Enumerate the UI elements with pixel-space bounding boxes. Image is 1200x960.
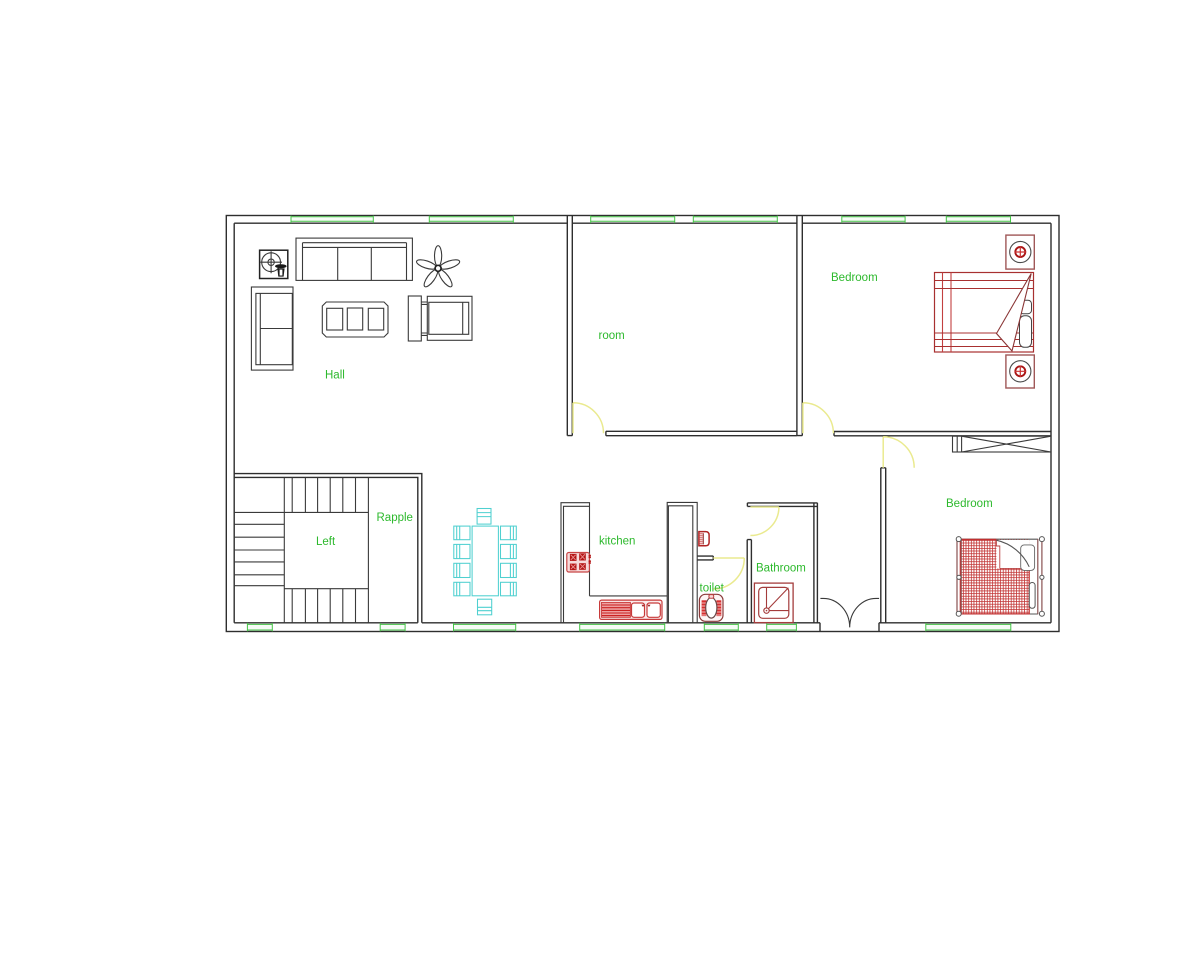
svg-text:kitchen: kitchen	[599, 536, 635, 548]
svg-text:Bathroom: Bathroom	[756, 563, 806, 575]
svg-text:toilet: toilet	[700, 583, 725, 595]
svg-text:Left: Left	[316, 536, 336, 548]
svg-text:Hall: Hall	[325, 370, 345, 382]
svg-text:room: room	[599, 330, 625, 342]
svg-text:Bedroom: Bedroom	[946, 498, 993, 510]
svg-text:Bedroom: Bedroom	[831, 272, 878, 284]
svg-text:Rapple: Rapple	[377, 512, 413, 524]
